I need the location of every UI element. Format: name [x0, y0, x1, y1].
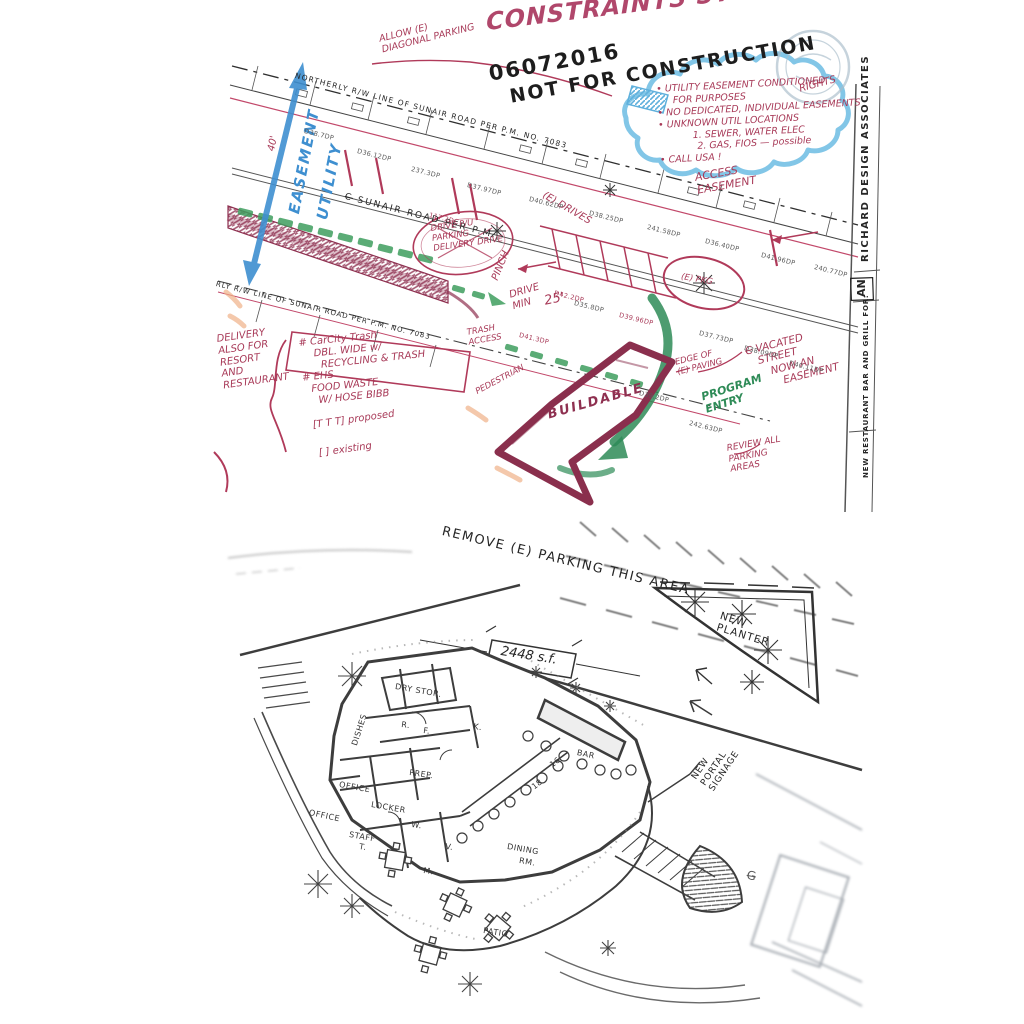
delivery-note: DELIVERYALSO FORRESORTANDRESTAURANT — [216, 325, 290, 393]
stairs — [615, 832, 742, 912]
room-label: W. — [411, 820, 423, 831]
red-stall-grid — [540, 226, 676, 298]
titleblock-firm-name: RICHARD DESIGN ASSOCIATES — [860, 55, 872, 262]
portal-leader — [648, 762, 700, 802]
room-label: R. — [401, 720, 411, 731]
room-label: F. — [423, 726, 431, 736]
room-label: K. — [473, 722, 483, 733]
floor-plan-sheet: REMOVE (E) PARKING THIS AREA 2448 s.f. N… — [0, 512, 1024, 1024]
room-label: V. — [445, 842, 454, 852]
titleblock-project-name: NEW RESTAURANT BAR AND GRILL FOR: — [862, 294, 870, 478]
constraints-study-sheet: CONSTRAINTS STUDY 06072016 NOT FOR CONST… — [0, 0, 1024, 512]
planter-triangle — [655, 582, 818, 702]
utility-cloud-notes: • UTILITY EASEMENT CONDITIONEDFOR PURPOS… — [656, 73, 863, 167]
floor-plan-linework — [0, 512, 1024, 1024]
scanned-drawings-page: { "top_sheet": { "title": "CONSTRAINTS S… — [0, 0, 1024, 1024]
trash-notes: # CarCity TrashDBL. WIDE w/RECYCLING & T… — [298, 325, 430, 408]
faded-right-fragments — [751, 774, 862, 1006]
faded-top-lines — [228, 550, 412, 574]
room-label: M. — [423, 866, 435, 877]
